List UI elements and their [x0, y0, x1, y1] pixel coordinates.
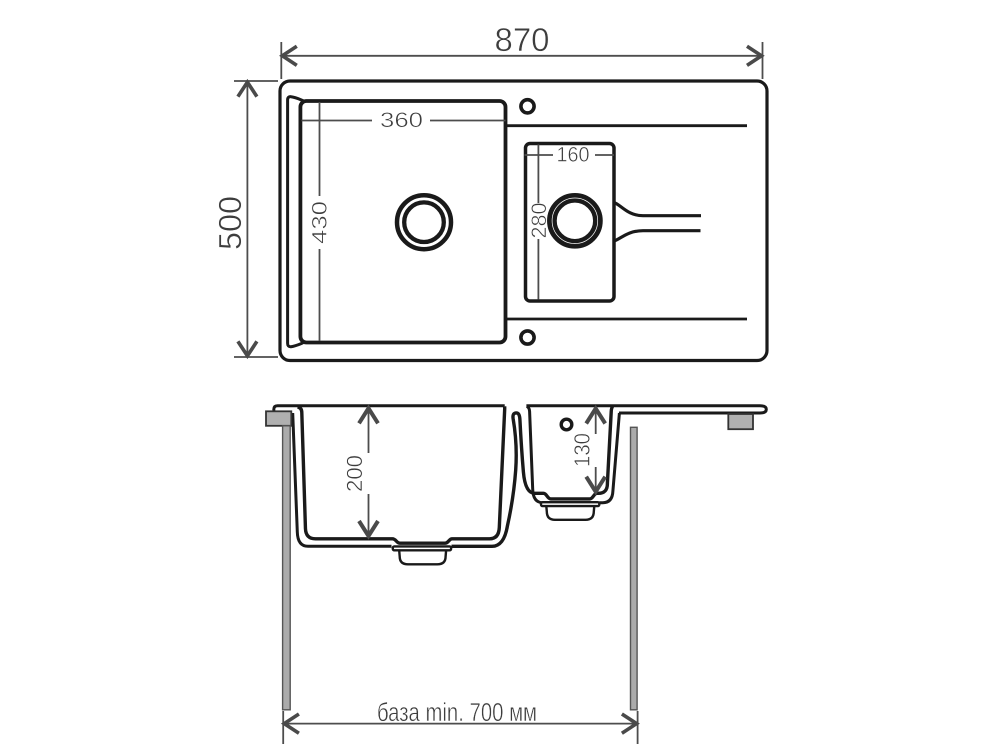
svg-text:база min. 700 мм: база min. 700 мм: [377, 697, 537, 727]
svg-text:200: 200: [342, 455, 367, 492]
svg-text:430: 430: [309, 201, 332, 244]
svg-text:130: 130: [570, 433, 595, 467]
svg-text:360: 360: [380, 109, 423, 132]
svg-text:500: 500: [212, 196, 248, 250]
svg-text:870: 870: [495, 21, 550, 58]
svg-text:280: 280: [528, 203, 551, 239]
svg-text:160: 160: [557, 144, 590, 167]
